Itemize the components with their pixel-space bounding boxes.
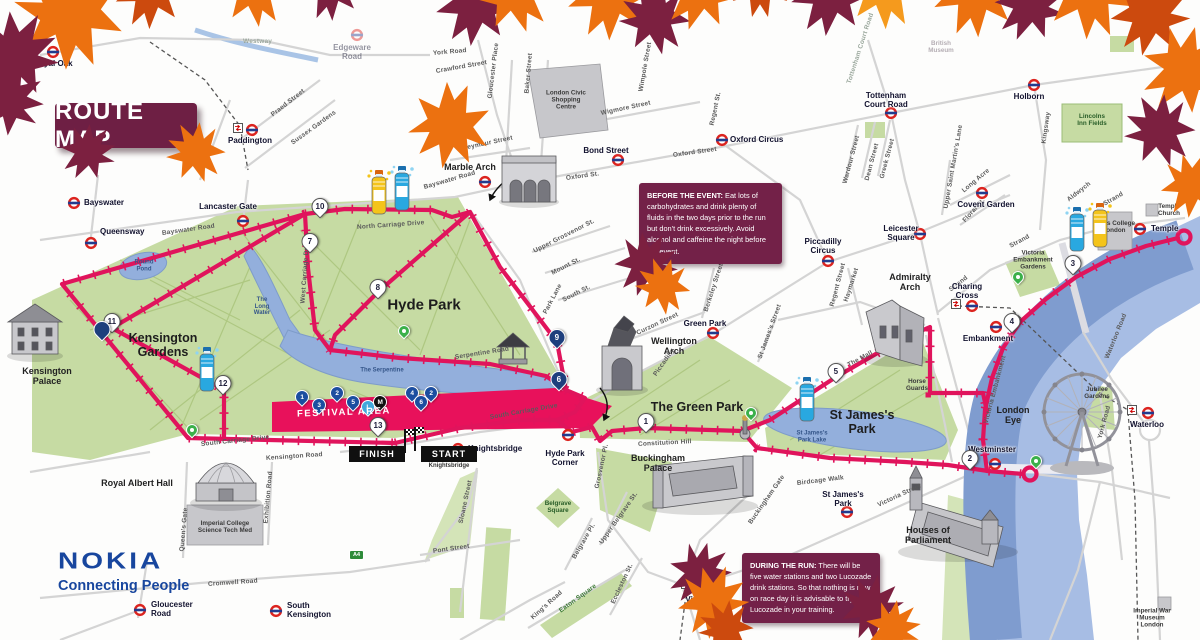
station-label: Green Park — [684, 320, 727, 329]
street-label: York Road — [1097, 405, 1113, 439]
tube-roundel-icon — [1134, 223, 1147, 236]
map-label: The Serpentine — [360, 368, 403, 375]
street-label: Pont Street — [433, 543, 470, 555]
station-label: Bond Street — [583, 147, 628, 156]
tube-roundel-icon — [716, 134, 729, 147]
street-label: Wardour Street — [842, 135, 862, 185]
lucozade-bottle-icon — [1087, 201, 1113, 249]
before-heading: BEFORE THE EVENT: — [647, 191, 723, 200]
street-label: Dean Street — [864, 143, 881, 182]
street-label: Constitution Hill — [638, 438, 692, 448]
street-label: South Carriage Drive — [489, 402, 558, 421]
street-label: Oxford St. — [566, 170, 600, 182]
tube-roundel-icon — [47, 46, 60, 59]
mile-marker-pin: 13 — [370, 417, 387, 434]
map-label: Buckingham Palace — [631, 453, 685, 473]
station-label: Victoria — [685, 596, 714, 605]
mile-marker-pin: 1 — [638, 413, 655, 430]
mile-marker-pin: 9 — [549, 329, 566, 346]
street-label: The Mall — [846, 349, 874, 368]
station-label: Leicester Square — [883, 225, 918, 243]
street-label: Haymarket — [843, 267, 860, 302]
station-label: Gloucester Road — [151, 601, 193, 619]
mile-marker-pin — [94, 321, 111, 338]
map-label: The Green Park — [651, 400, 743, 414]
tube-roundel-icon — [479, 176, 492, 189]
street-label: Belgrave Pl. — [571, 522, 597, 560]
rail-station-icon — [1127, 405, 1137, 415]
rail-station-icon — [681, 579, 691, 589]
station-label: South Kensington — [287, 602, 331, 620]
mile-marker-pin: 10 — [312, 198, 329, 215]
street-label: Seymour Street — [462, 135, 513, 152]
street-label: Sussex Gardens — [290, 109, 338, 146]
map-label: London Eye — [997, 405, 1030, 425]
station-label: Waterloo — [1130, 421, 1164, 430]
map-label: Jubilee Gardens — [1084, 386, 1110, 400]
station-label: Edgeware Road — [333, 44, 371, 62]
station-label: Royal Oak — [33, 60, 72, 69]
street-label: Curzon Street — [636, 311, 680, 336]
map-label: Kensington Palace — [22, 366, 72, 386]
tube-roundel-icon — [351, 29, 364, 42]
mile-marker-pin: 8 — [370, 279, 387, 296]
during-run-infobox: DURING THE RUN: There will be five water… — [742, 553, 880, 623]
street-label: Upper Grosvenor St. — [532, 218, 595, 255]
amenity-pin — [745, 407, 757, 419]
tube-roundel-icon — [270, 605, 283, 618]
street-label: Mount St. — [550, 256, 581, 276]
map-label: Horse Guards — [906, 378, 928, 392]
mile-marker-pin: 4 — [1004, 313, 1021, 330]
tube-roundel-icon — [1028, 79, 1041, 92]
street-label: Eccleston St. — [610, 563, 635, 605]
map-label: Victoria Embankment Gardens — [1013, 249, 1053, 270]
street-label: South St. — [561, 284, 591, 304]
street-label: Sloane Street — [458, 480, 474, 525]
street-label: Berkeley Street — [703, 263, 725, 313]
street-label: Kingsway — [1041, 111, 1052, 144]
mile-marker-pin: 3 — [1065, 255, 1082, 272]
amenity-pin — [398, 325, 410, 337]
mile-marker-pin: 6 — [551, 371, 568, 388]
street-label: Grosvenor Pl. — [594, 444, 610, 490]
street-label: Oxford Street — [673, 146, 718, 159]
tube-roundel-icon — [989, 458, 1002, 471]
street-label: Wimpole Street — [638, 42, 654, 93]
map-label: Imperial College Science Tech Med — [198, 520, 252, 534]
tube-roundel-icon — [237, 215, 250, 228]
page-title: ROUTE MAP — [55, 98, 197, 154]
map-label: British Museum — [928, 40, 954, 54]
station-label: Holborn — [1014, 93, 1045, 102]
street-label: Bayswater Road — [162, 223, 216, 237]
street-label: Upper Saint Martin's Lane — [943, 124, 965, 209]
knightsbridge-street-label: Knightsbridge — [429, 463, 470, 469]
tube-roundel-icon — [134, 604, 147, 617]
nokia-tagline: Connecting People — [58, 578, 189, 594]
street-label: Gloucester Place — [487, 43, 501, 99]
start-marker: START — [421, 446, 477, 462]
map-label: St James's Park Lake — [796, 430, 827, 443]
station-label: Tottenham Court Road — [864, 92, 908, 110]
station-label: Hyde Park Corner — [545, 450, 584, 468]
street-label: Westway — [243, 38, 272, 45]
street-label: Regent St. — [709, 91, 723, 126]
finish-marker: FINISH — [349, 446, 405, 462]
station-label: Lancaster Gate — [199, 203, 257, 212]
nokia-logo: NOKIA Connecting People — [58, 548, 189, 594]
map-label: Hyde Park — [387, 298, 460, 315]
station-label: Queensway — [100, 228, 144, 237]
festival-marker-pin: 2 — [330, 386, 344, 400]
map-label: Belgrave Square — [545, 500, 572, 514]
before-event-infobox: BEFORE THE EVENT: Eat lots of carbohydra… — [639, 183, 782, 264]
station-label: Bayswater — [84, 199, 124, 208]
street-label: Wigmore Street — [600, 100, 651, 117]
station-label: St James's Park — [822, 491, 863, 509]
nokia-wordmark: NOKIA — [58, 548, 189, 574]
tube-roundel-icon — [822, 255, 835, 268]
street-label: Serpentine Road — [454, 345, 509, 360]
road-badge: A4 — [349, 550, 364, 560]
street-label: Victoria Street — [877, 482, 923, 508]
map-label: St James's Park — [830, 408, 895, 436]
festival-marker-pin: 1 — [295, 390, 309, 404]
street-label: Crawford Street — [435, 59, 487, 75]
street-label: Park Lane — [542, 283, 564, 315]
street-label: North Carriage Drive — [357, 219, 425, 231]
street-label: Buckingham Gate — [747, 474, 786, 526]
station-label: Embankment — [963, 335, 1013, 344]
street-label: Baker Street — [524, 53, 535, 94]
street-label: Strand — [1008, 233, 1031, 249]
start-finish-flags-icon — [399, 425, 425, 453]
street-label: Aldwych — [1066, 180, 1092, 203]
during-heading: DURING THE RUN: — [750, 561, 817, 570]
street-label: Tottenham Court Road — [846, 12, 876, 84]
street-label: Bayswater Road — [423, 169, 476, 190]
map-label: Kensington Gardens — [129, 331, 198, 359]
street-label: Cromwell Road — [208, 578, 258, 588]
tube-roundel-icon — [85, 237, 98, 250]
station-label: Temple — [1151, 225, 1178, 234]
station-label: Paddington — [228, 137, 272, 146]
amenity-pin — [1012, 271, 1024, 283]
map-label: London Civic Shopping Centre — [546, 89, 586, 110]
street-label: York Road — [433, 47, 467, 57]
street-label: Eaton Square — [558, 583, 598, 615]
route-map-page: WestwayPraed StreetSussex GardensYork Ro… — [0, 0, 1200, 640]
street-label: Greek Street — [879, 138, 896, 179]
map-label: Houses of Parliament — [905, 525, 951, 545]
station-label: Covent Garden — [957, 201, 1014, 210]
tube-roundel-icon — [695, 582, 708, 595]
rail-station-icon — [233, 123, 243, 133]
street-label: Birdcage Walk — [797, 474, 845, 487]
station-label: Charing Cross — [952, 283, 982, 301]
tube-roundel-icon — [68, 197, 81, 210]
tube-roundel-icon — [966, 300, 979, 313]
street-label: Upper Belgrave St. — [598, 491, 639, 546]
street-label: Exhibition Road — [263, 471, 275, 524]
map-label: Lincolns Inn Fields — [1077, 113, 1106, 127]
street-label: Waterloo Road — [1104, 312, 1129, 359]
tube-roundel-icon — [976, 187, 989, 200]
street-label: St James's Street — [757, 303, 783, 359]
station-label: Piccadilly Circus — [805, 238, 842, 256]
street-label: South Carriage Drive — [201, 434, 270, 448]
street-label: Praed Street — [270, 88, 306, 119]
water-bottle-icon — [794, 375, 820, 423]
tube-roundel-icon — [1142, 407, 1155, 420]
map-label: The Long Water — [254, 297, 270, 317]
festival-marker-pin: 2 — [424, 386, 438, 400]
map-label: Temple Church — [1158, 203, 1180, 217]
station-label: Oxford Circus — [730, 136, 783, 145]
map-overlay: WestwayPraed StreetSussex GardensYork Ro… — [0, 0, 1200, 640]
street-label: Kensington Road — [266, 451, 323, 462]
map-label: Round Pond — [135, 259, 154, 272]
street-label: Queen's Gate — [179, 507, 190, 551]
mile-marker-pin: 12 — [215, 375, 232, 392]
mile-marker-pin: 7 — [302, 233, 319, 250]
route-map-title-box: ROUTE MAP — [55, 103, 197, 148]
tube-roundel-icon — [562, 429, 575, 442]
water-bottle-icon — [389, 164, 415, 212]
map-label: Royal Albert Hall — [101, 478, 173, 488]
mile-marker-pin: 2 — [962, 450, 979, 467]
amenity-pin — [1030, 455, 1042, 467]
before-body: Eat lots of carbohydrates and drink plen… — [647, 191, 766, 256]
map-label: Admiralty Arch — [889, 272, 931, 292]
map-label: Imperial War Museum London — [1128, 607, 1176, 628]
tube-roundel-icon — [990, 321, 1003, 334]
mile-marker-pin: 5 — [828, 363, 845, 380]
amenity-pin — [186, 424, 198, 436]
tube-roundel-icon — [246, 124, 259, 137]
street-label: King's Road — [530, 589, 564, 621]
